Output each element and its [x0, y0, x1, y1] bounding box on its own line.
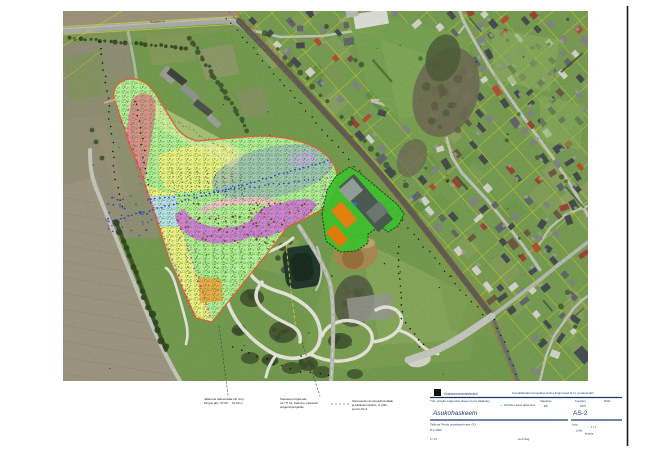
svg-text:AS-2: AS-2 [573, 410, 588, 417]
svg-text:— tehniline kava lahendus: — tehniline kava lahendus [500, 403, 536, 407]
svg-text:2007: 2007 [580, 404, 587, 408]
svg-text:5 / 07: 5 / 07 [430, 437, 437, 441]
svg-text:Asukohaskeem: Asukohaskeem [432, 410, 478, 417]
svg-text:Mõõt: Mõõt [604, 399, 610, 403]
svg-text:Kooskõlastatud projekteerimin: Kooskõlastatud projekteerimine tingimuse… [512, 391, 594, 395]
svg-text:as-2.dwg: as-2.dwg [518, 437, 530, 441]
svg-text:joonis AS-3: joonis AS-3 [351, 407, 368, 411]
svg-text:Lehti:: Lehti: [576, 429, 583, 433]
svg-text:kõrgus abs. 57.00 ... 61.00 m: kõrgus abs. 57.00 ... 61.00 m [204, 401, 243, 405]
svg-text:EP: EP [544, 404, 548, 408]
svg-text:Leht:: Leht: [572, 423, 578, 427]
svg-text:Töö: prügila sulgemise skeem k: Töö: prügila sulgemise skeem koos haljas… [430, 399, 490, 403]
svg-text:Keskkonnaministeerium: Keskkonnaministeerium [444, 392, 478, 396]
svg-text:Kuupäev: Kuupäev [575, 399, 587, 403]
svg-text:sulgemisprojektile: sulgemisprojektile [280, 405, 304, 409]
svg-text:Staadium: Staadium [540, 399, 552, 403]
svg-text:Tallinna Teede projekteerimise: Tallinna Teede projekteerimise OÜ [430, 423, 476, 427]
svg-text:koopia: koopia [585, 432, 594, 436]
svg-text:M 1:2000: M 1:2000 [430, 428, 442, 432]
svg-text:1 / 1: 1 / 1 [591, 425, 597, 429]
